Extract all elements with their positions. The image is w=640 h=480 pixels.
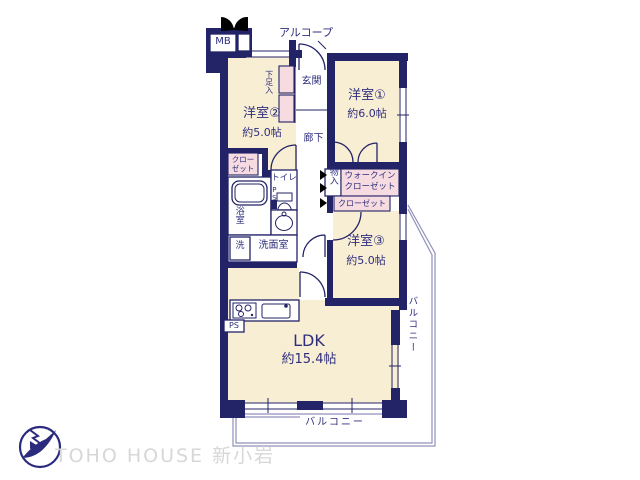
balcony-side-label: バルコニー <box>406 296 417 354</box>
meter-box-door-left <box>221 17 234 31</box>
meter-box-label: MB <box>210 36 236 48</box>
ldk-name: LDK <box>228 331 390 350</box>
washroom-label: 洗面室 <box>250 240 297 252</box>
floorplan-drawing <box>0 0 640 480</box>
entrance-door <box>299 44 325 70</box>
compass-bird-logo <box>20 427 60 467</box>
shoe-cabinet-upper <box>279 66 294 93</box>
bathroom-label: 浴室 <box>233 206 244 224</box>
laundry-label: 洗 <box>230 241 250 252</box>
bedroom3-right-window <box>400 214 406 240</box>
vanity-box <box>271 210 297 235</box>
bedroom2-name: 洋室② <box>228 106 296 122</box>
meter-box-door-right <box>234 17 248 31</box>
shoe-cabinet-label: 下足入 <box>264 70 274 94</box>
closet-bedroom3-label: クローゼット <box>334 199 390 209</box>
storage-label: 物入 <box>327 167 338 185</box>
bedroom2-top-window <box>246 51 290 57</box>
bedroom3-size: 約5.0帖 <box>333 254 399 267</box>
hallway-label: 廊下 <box>300 133 327 145</box>
bedroom3-name: 洋室③ <box>333 234 399 250</box>
ldk-size: 約15.4帖 <box>228 352 390 368</box>
kitchen-faucet-icon <box>284 304 288 308</box>
bedroom1-name: 洋室① <box>335 88 399 104</box>
bedroom1-size: 約6.0帖 <box>335 107 399 120</box>
bedroom2-size: 約5.0帖 <box>228 126 296 139</box>
balcony-bottom-label: バルコニー <box>280 417 390 429</box>
toilet-ps-label: PS <box>270 186 278 202</box>
watermark-brand: TOHO HOUSE 新小岩 <box>55 441 275 468</box>
entrance-label: 玄関 <box>296 76 327 88</box>
closet-bedroom2-label: クロー ゼット <box>228 155 258 174</box>
alcove-label: アルコープ <box>279 26 333 39</box>
walk-in-closet-label: ウォークイン クローゼット <box>341 171 399 193</box>
toilet-label: トイレ <box>271 173 297 183</box>
kitchen-ps-label: PS <box>224 321 244 331</box>
floorplan-canvas: アルコープ MB 下足入 玄関 廊下 洋室② 約5.0帖 洋室① 約6.0帖 洋… <box>0 0 640 480</box>
alcove-pointer-line <box>318 41 326 49</box>
